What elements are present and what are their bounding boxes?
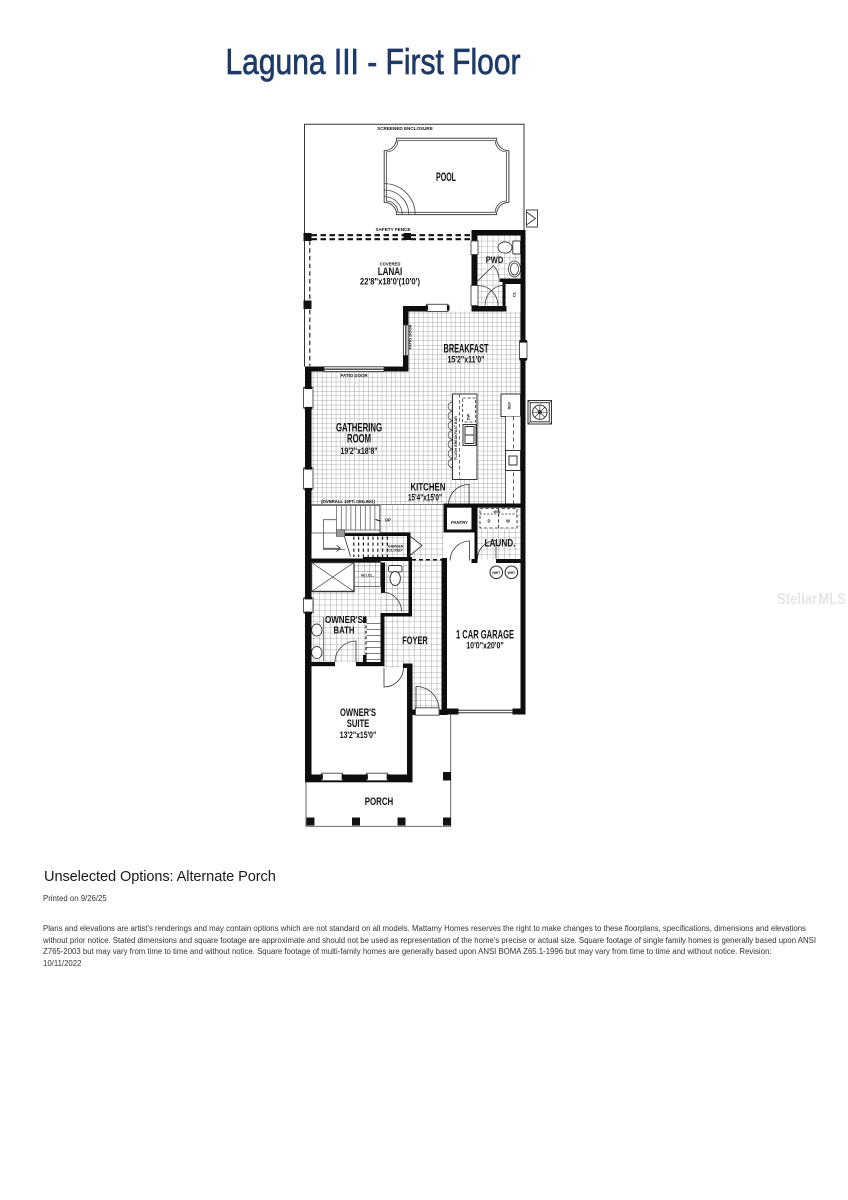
svg-text:CL: CL <box>512 291 517 297</box>
svg-text:PORCH: PORCH <box>365 796 394 808</box>
svg-text:POOL: POOL <box>436 172 456 184</box>
svg-text:W: W <box>506 519 510 524</box>
svg-text:DW: DW <box>467 413 471 420</box>
svg-text:13'2"x15'0": 13'2"x15'0" <box>340 730 377 741</box>
svg-text:BATH: BATH <box>334 625 355 637</box>
svg-text:PATIO DOOR: PATIO DOOR <box>340 373 368 378</box>
svg-text:D: D <box>487 519 490 524</box>
svg-text:LAUND.: LAUND. <box>485 538 516 550</box>
svg-text:UP: UP <box>385 518 391 523</box>
svg-text:REF: REF <box>508 401 512 409</box>
svg-text:15'2"x11'0": 15'2"x11'0" <box>448 355 485 365</box>
svg-text:SAFETY FENCE: SAFETY FENCE <box>376 227 411 232</box>
svg-text:PANTRY: PANTRY <box>451 520 468 525</box>
svg-text:SCREENED ENCLOSURE: SCREENED ENCLOSURE <box>377 126 433 131</box>
svg-text:PWD: PWD <box>486 255 504 266</box>
svg-text:15'4"x15'0": 15'4"x15'0" <box>408 493 442 503</box>
svg-text:SUITE: SUITE <box>347 718 370 730</box>
svg-text:HWT: HWT <box>492 571 501 575</box>
svg-text:22'8"x18'0'(10'0'): 22'8"x18'0'(10'0') <box>360 277 420 287</box>
svg-text:WHT: WHT <box>508 571 517 575</box>
svg-text:FOYER: FOYER <box>402 635 428 647</box>
svg-text:(OVERALL 10FT. CEILING): (OVERALL 10FT. CEILING) <box>321 499 375 504</box>
svg-text:10'0"x20'0": 10'0"x20'0" <box>466 641 504 651</box>
svg-text:FLUSH BREAKFAST BAR: FLUSH BREAKFAST BAR <box>454 416 458 460</box>
svg-text:ROOM: ROOM <box>347 434 371 446</box>
svg-text:PATIO DOOR: PATIO DOOR <box>408 325 413 350</box>
svg-text:CLOSET: CLOSET <box>388 549 403 553</box>
svg-text:W/D: W/D <box>494 510 501 514</box>
svg-text:W.I.CL.: W.I.CL. <box>361 574 374 578</box>
svg-text:19'2"x18'8": 19'2"x18'8" <box>341 446 378 457</box>
